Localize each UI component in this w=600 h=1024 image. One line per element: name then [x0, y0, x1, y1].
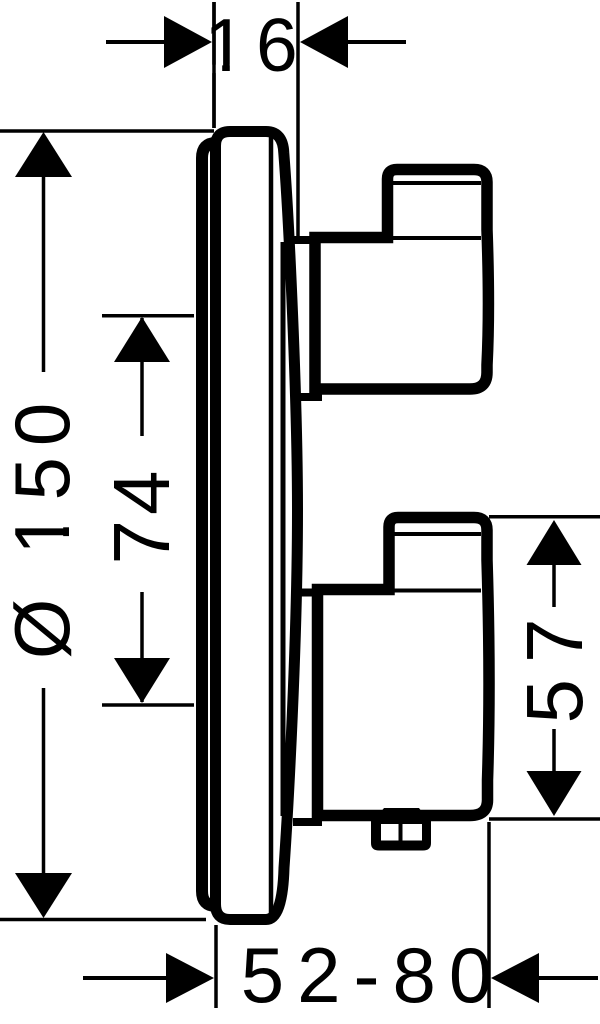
svg-text:52-80: 52-80 [241, 931, 506, 1019]
svg-text:16: 16 [204, 3, 307, 87]
svg-text:Ø 150: Ø 150 [0, 392, 86, 659]
svg-text:74: 74 [97, 466, 186, 565]
svg-text:57: 57 [510, 603, 599, 724]
